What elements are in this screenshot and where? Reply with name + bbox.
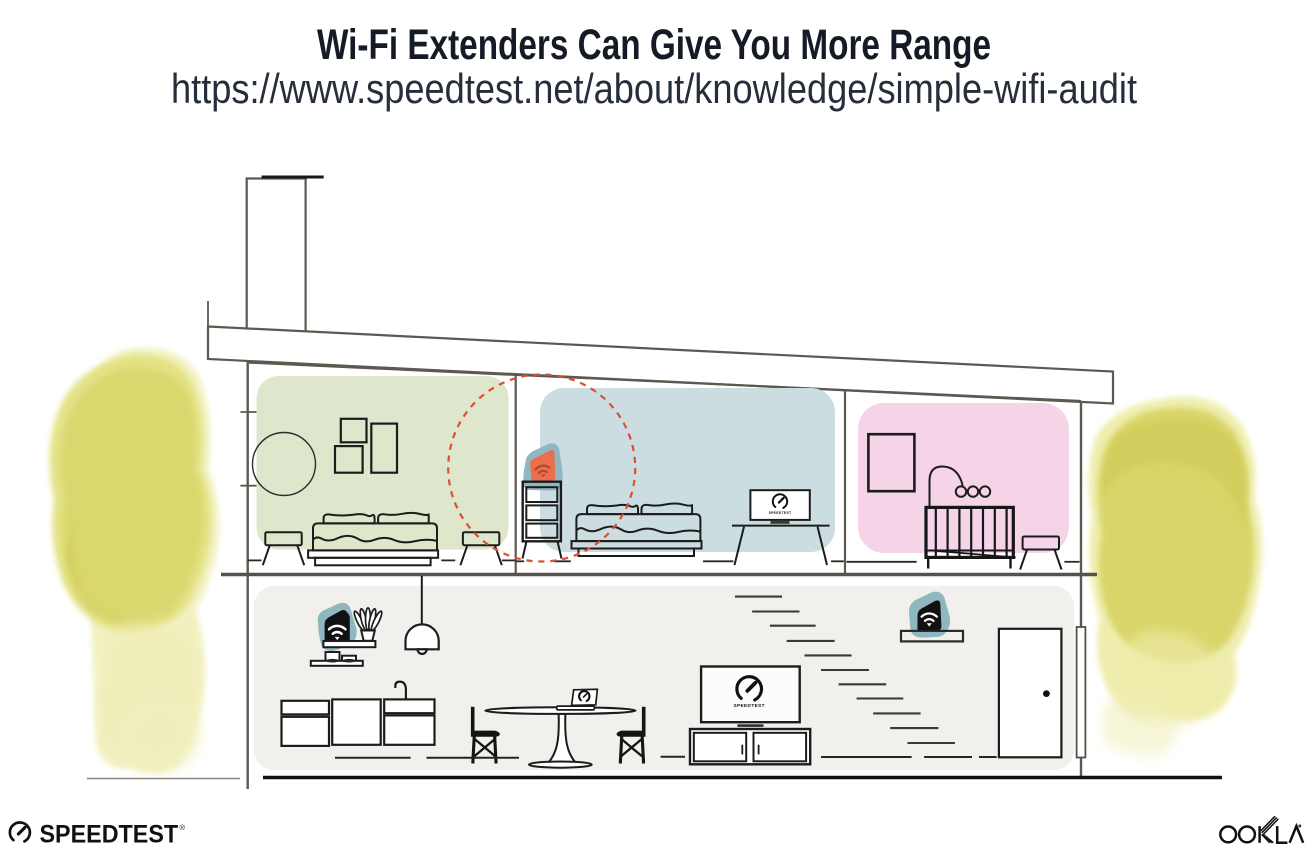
svg-text:SPEEDTEST: SPEEDTEST bbox=[733, 703, 764, 708]
svg-text:Wi-Fi Extenders Can Give You M: Wi-Fi Extenders Can Give You More Range bbox=[317, 22, 991, 69]
svg-text:®: ® bbox=[180, 823, 186, 832]
svg-text:https://www.speedtest.net/abou: https://www.speedtest.net/about/knowledg… bbox=[171, 65, 1137, 112]
svg-text:SPEEDTEST: SPEEDTEST bbox=[769, 511, 792, 515]
svg-text:SPEEDTEST: SPEEDTEST bbox=[40, 822, 179, 849]
